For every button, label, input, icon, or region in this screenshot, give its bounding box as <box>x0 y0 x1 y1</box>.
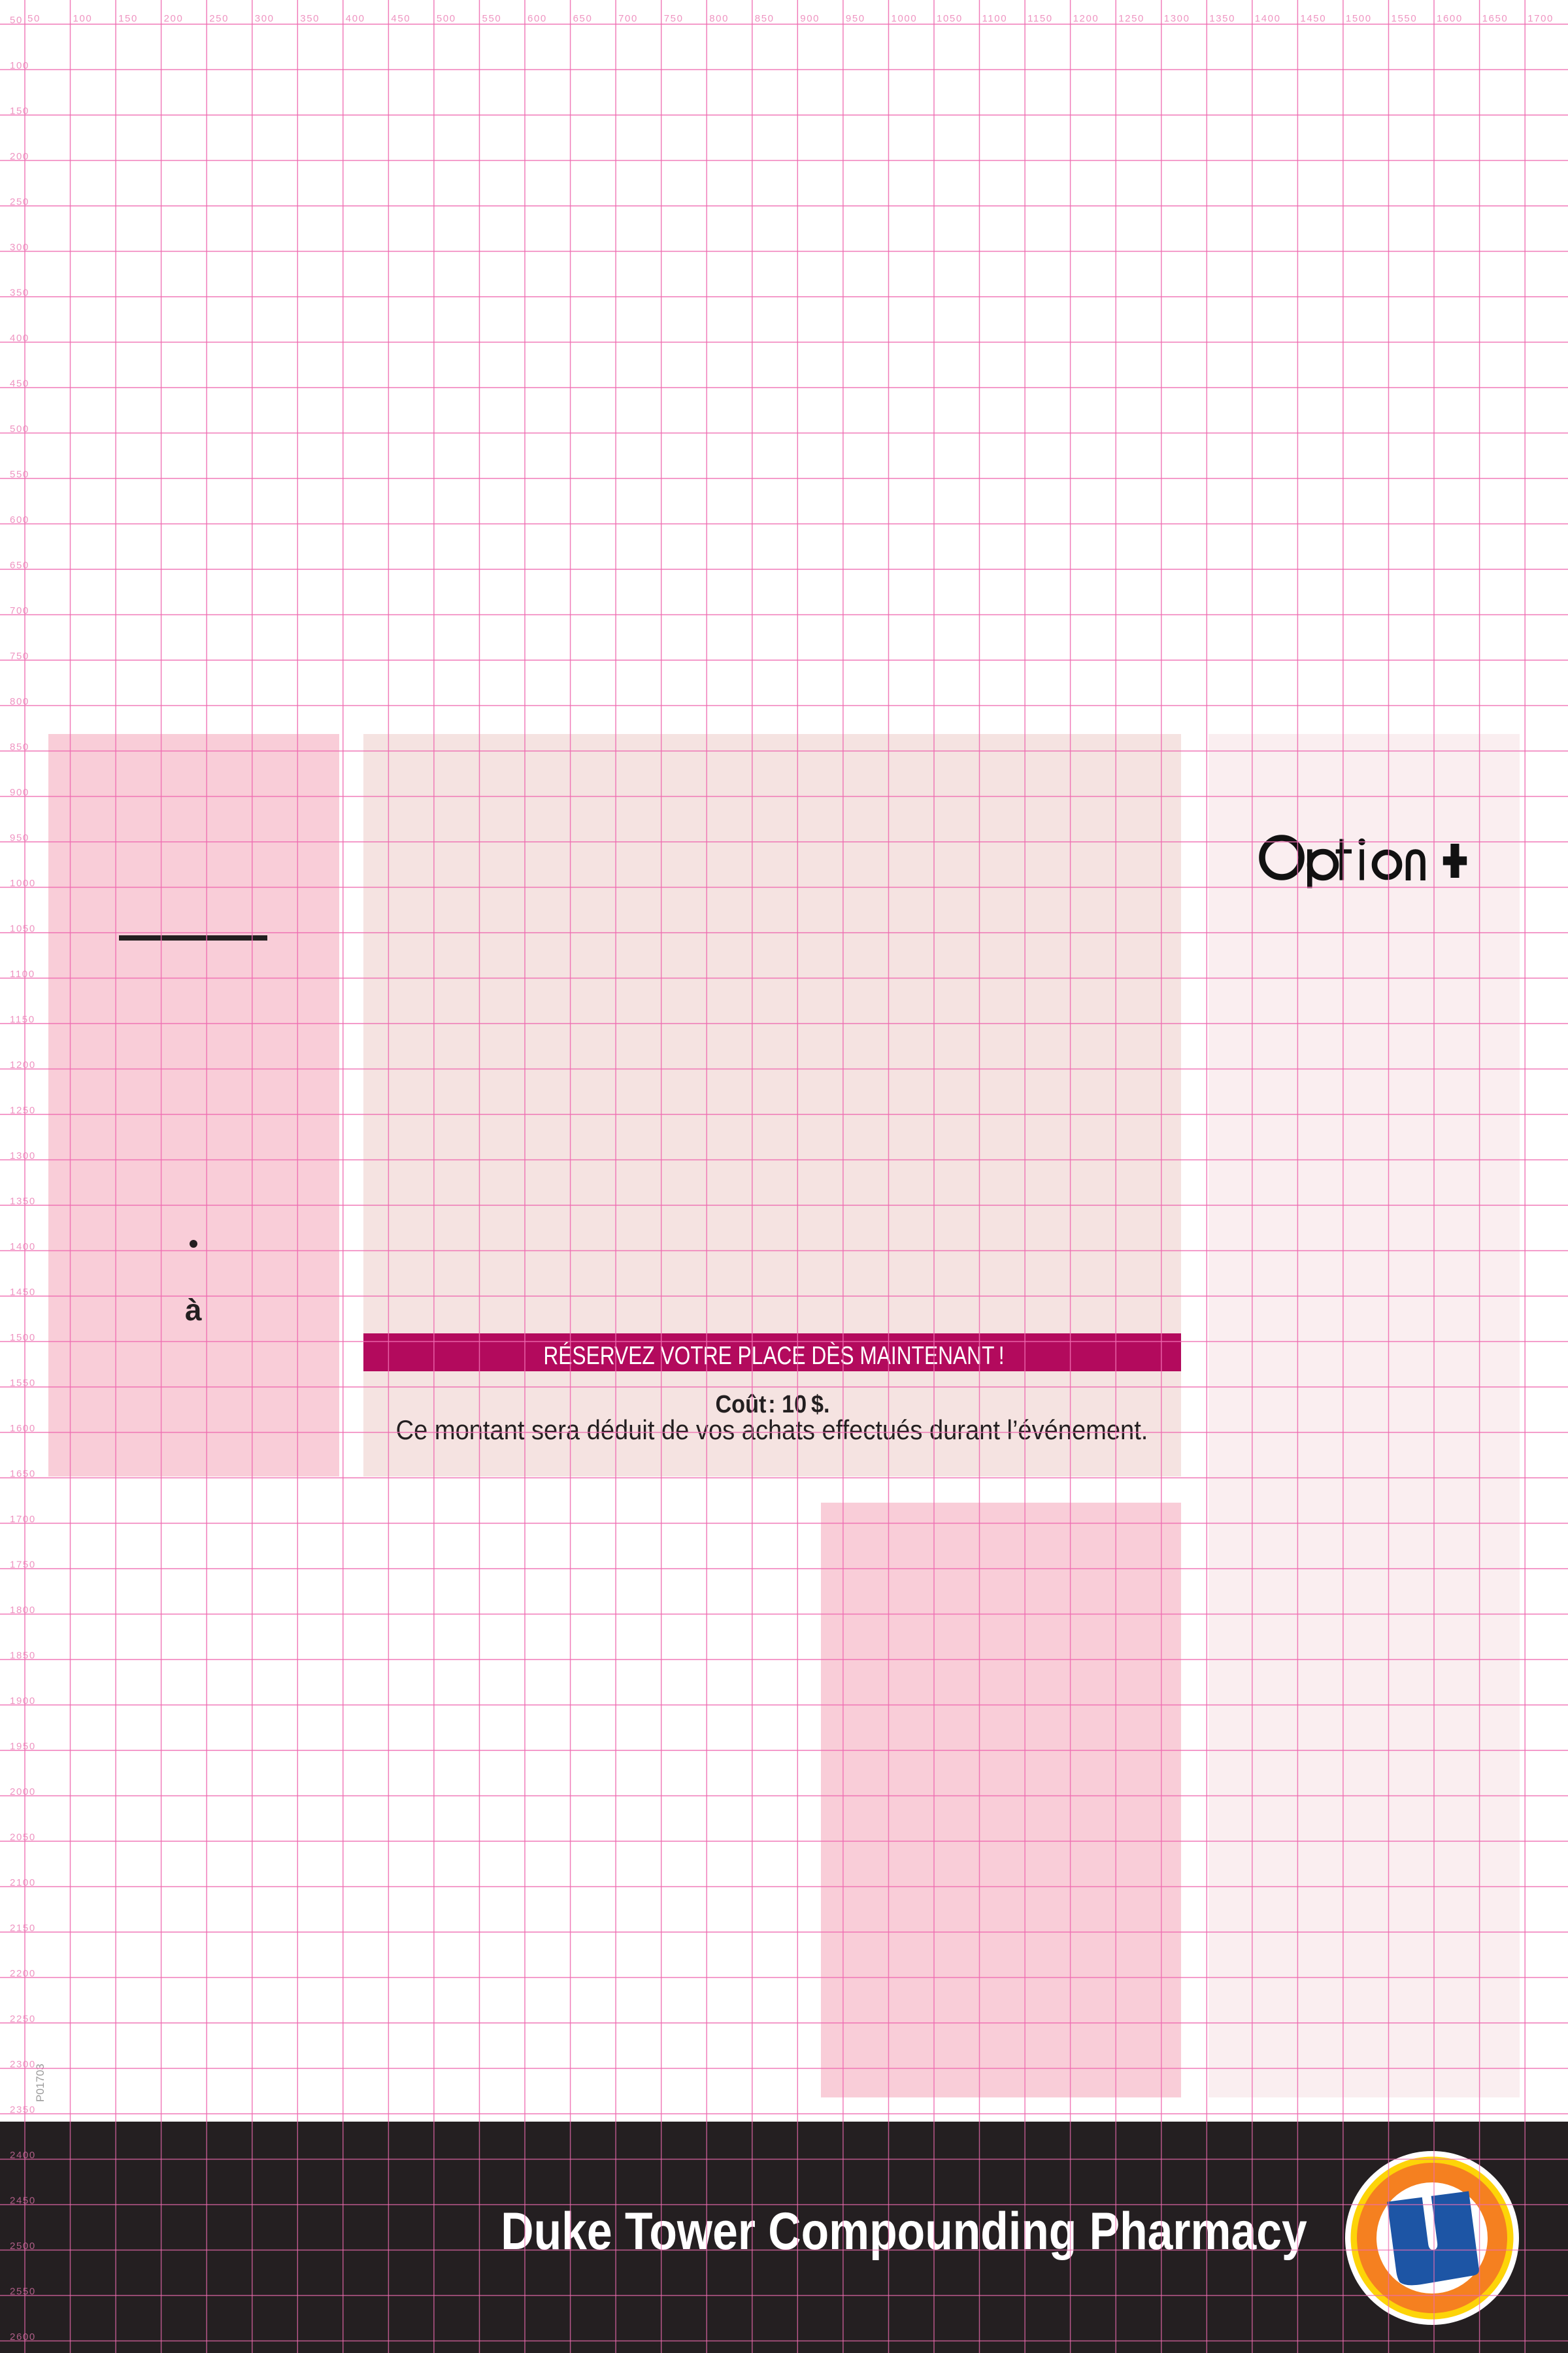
svg-text:350: 350 <box>10 288 29 299</box>
svg-text:400: 400 <box>346 13 365 24</box>
svg-text:1600: 1600 <box>1437 13 1463 24</box>
svg-text:850: 850 <box>10 742 29 753</box>
svg-text:2250: 2250 <box>10 2014 36 2025</box>
svg-text:1450: 1450 <box>10 1287 36 1298</box>
svg-text:1250: 1250 <box>1118 13 1144 24</box>
svg-text:1650: 1650 <box>1482 13 1509 24</box>
svg-text:1600: 1600 <box>10 1423 36 1434</box>
svg-text:1500: 1500 <box>10 1332 36 1343</box>
svg-text:1050: 1050 <box>937 13 963 24</box>
svg-text:900: 900 <box>10 787 29 798</box>
svg-text:600: 600 <box>527 13 547 24</box>
svg-text:400: 400 <box>346 13 365 24</box>
svg-text:1850: 1850 <box>10 1650 36 1661</box>
svg-text:650: 650 <box>10 560 29 571</box>
svg-text:1900: 1900 <box>10 1695 36 1707</box>
svg-text:2250: 2250 <box>10 2014 36 2025</box>
svg-text:750: 750 <box>10 651 29 662</box>
svg-text:1650: 1650 <box>1482 13 1509 24</box>
svg-text:800: 800 <box>10 696 29 707</box>
svg-text:1550: 1550 <box>1392 13 1418 24</box>
svg-text:2150: 2150 <box>10 1923 36 1934</box>
svg-text:350: 350 <box>10 288 29 299</box>
svg-text:1550: 1550 <box>1392 13 1418 24</box>
svg-text:350: 350 <box>300 13 320 24</box>
svg-text:1150: 1150 <box>10 1014 35 1026</box>
svg-text:300: 300 <box>255 13 275 24</box>
svg-text:400: 400 <box>10 333 29 344</box>
svg-text:50: 50 <box>27 13 41 24</box>
svg-text:1900: 1900 <box>10 1695 36 1707</box>
svg-text:550: 550 <box>10 469 29 480</box>
svg-text:450: 450 <box>391 13 410 24</box>
svg-text:2200: 2200 <box>10 1968 36 1979</box>
svg-text:950: 950 <box>10 833 29 844</box>
svg-text:1100: 1100 <box>982 13 1008 24</box>
svg-text:1550: 1550 <box>10 1378 36 1389</box>
svg-text:900: 900 <box>10 787 29 798</box>
svg-text:200: 200 <box>164 13 184 24</box>
svg-text:1300: 1300 <box>1164 13 1190 24</box>
svg-text:200: 200 <box>10 151 29 162</box>
svg-text:2300: 2300 <box>10 2059 36 2070</box>
svg-text:400: 400 <box>10 333 29 344</box>
svg-text:1400: 1400 <box>10 1241 36 1252</box>
svg-text:2150: 2150 <box>10 1923 36 1934</box>
svg-text:950: 950 <box>846 13 865 24</box>
svg-text:550: 550 <box>10 469 29 480</box>
svg-text:750: 750 <box>664 13 684 24</box>
svg-text:650: 650 <box>10 560 29 571</box>
svg-text:1250: 1250 <box>10 1105 36 1116</box>
svg-text:1700: 1700 <box>1527 13 1554 24</box>
svg-text:1600: 1600 <box>10 1423 36 1434</box>
svg-text:250: 250 <box>209 13 229 24</box>
svg-text:600: 600 <box>10 514 29 526</box>
svg-text:2350: 2350 <box>10 2105 36 2116</box>
svg-text:500: 500 <box>437 13 456 24</box>
svg-text:750: 750 <box>664 13 684 24</box>
svg-text:300: 300 <box>10 242 29 253</box>
svg-text:2050: 2050 <box>10 1832 36 1843</box>
svg-text:1400: 1400 <box>10 1241 36 1252</box>
svg-text:1250: 1250 <box>10 1105 36 1116</box>
svg-text:500: 500 <box>10 424 29 435</box>
svg-text:1350: 1350 <box>1209 13 1235 24</box>
svg-text:1300: 1300 <box>10 1150 36 1161</box>
svg-text:50: 50 <box>10 15 23 26</box>
svg-text:800: 800 <box>709 13 729 24</box>
svg-text:200: 200 <box>164 13 184 24</box>
svg-text:750: 750 <box>10 651 29 662</box>
svg-text:1050: 1050 <box>10 924 36 935</box>
svg-text:1300: 1300 <box>1164 13 1190 24</box>
svg-text:1150: 1150 <box>1027 13 1053 24</box>
svg-text:1400: 1400 <box>1255 13 1281 24</box>
svg-text:1950: 1950 <box>10 1741 36 1752</box>
svg-text:300: 300 <box>10 242 29 253</box>
svg-text:550: 550 <box>482 13 502 24</box>
svg-text:1000: 1000 <box>892 13 918 24</box>
svg-text:1600: 1600 <box>1437 13 1463 24</box>
svg-text:2050: 2050 <box>10 1832 36 1843</box>
svg-text:1400: 1400 <box>1255 13 1281 24</box>
svg-text:150: 150 <box>10 106 29 117</box>
svg-text:1450: 1450 <box>1300 13 1326 24</box>
svg-text:1100: 1100 <box>982 13 1008 24</box>
svg-text:50: 50 <box>27 13 41 24</box>
svg-text:150: 150 <box>10 106 29 117</box>
svg-text:800: 800 <box>709 13 729 24</box>
svg-text:1350: 1350 <box>10 1196 36 1207</box>
svg-text:1800: 1800 <box>10 1605 36 1616</box>
svg-text:850: 850 <box>755 13 775 24</box>
svg-text:1150: 1150 <box>1027 13 1053 24</box>
svg-text:1700: 1700 <box>10 1514 36 1525</box>
svg-text:1350: 1350 <box>1209 13 1235 24</box>
svg-text:1750: 1750 <box>10 1560 36 1571</box>
svg-text:650: 650 <box>573 13 593 24</box>
svg-text:1800: 1800 <box>10 1605 36 1616</box>
svg-text:600: 600 <box>10 514 29 526</box>
svg-text:1000: 1000 <box>892 13 918 24</box>
svg-text:1100: 1100 <box>10 969 35 980</box>
svg-text:900: 900 <box>800 13 820 24</box>
svg-text:1200: 1200 <box>1073 13 1099 24</box>
svg-text:1500: 1500 <box>1346 13 1372 24</box>
svg-text:2100: 2100 <box>10 1877 36 1888</box>
svg-text:800: 800 <box>10 696 29 707</box>
svg-text:100: 100 <box>73 13 93 24</box>
svg-text:2300: 2300 <box>10 2059 36 2070</box>
svg-text:2200: 2200 <box>10 1968 36 1979</box>
svg-text:850: 850 <box>755 13 775 24</box>
svg-text:1150: 1150 <box>10 1014 35 1026</box>
svg-text:450: 450 <box>10 378 29 390</box>
svg-text:1950: 1950 <box>10 1741 36 1752</box>
svg-text:1200: 1200 <box>10 1060 36 1071</box>
svg-text:1500: 1500 <box>10 1332 36 1343</box>
svg-text:1700: 1700 <box>10 1514 36 1525</box>
svg-text:950: 950 <box>846 13 865 24</box>
svg-text:1550: 1550 <box>10 1378 36 1389</box>
svg-text:1000: 1000 <box>10 878 36 889</box>
svg-text:2000: 2000 <box>10 1786 36 1797</box>
svg-text:1350: 1350 <box>10 1196 36 1207</box>
svg-text:850: 850 <box>10 742 29 753</box>
svg-text:50: 50 <box>10 15 23 26</box>
svg-text:250: 250 <box>209 13 229 24</box>
svg-text:100: 100 <box>10 60 29 71</box>
svg-text:1250: 1250 <box>1118 13 1144 24</box>
svg-text:2000: 2000 <box>10 1786 36 1797</box>
svg-text:1050: 1050 <box>937 13 963 24</box>
svg-text:1050: 1050 <box>10 924 36 935</box>
svg-text:1650: 1650 <box>10 1469 36 1480</box>
svg-text:950: 950 <box>10 833 29 844</box>
svg-text:700: 700 <box>10 605 29 616</box>
svg-text:1100: 1100 <box>10 969 35 980</box>
svg-text:1500: 1500 <box>1346 13 1372 24</box>
svg-text:100: 100 <box>73 13 93 24</box>
svg-text:450: 450 <box>10 378 29 390</box>
svg-text:1000: 1000 <box>10 878 36 889</box>
svg-text:250: 250 <box>10 197 29 208</box>
svg-text:1300: 1300 <box>10 1150 36 1161</box>
svg-text:1750: 1750 <box>10 1560 36 1571</box>
svg-text:1200: 1200 <box>10 1060 36 1071</box>
svg-text:700: 700 <box>10 605 29 616</box>
svg-text:1850: 1850 <box>10 1650 36 1661</box>
svg-text:350: 350 <box>300 13 320 24</box>
svg-text:1200: 1200 <box>1073 13 1099 24</box>
svg-text:900: 900 <box>800 13 820 24</box>
svg-text:450: 450 <box>391 13 410 24</box>
svg-text:250: 250 <box>10 197 29 208</box>
svg-text:500: 500 <box>10 424 29 435</box>
svg-text:1650: 1650 <box>10 1469 36 1480</box>
svg-text:100: 100 <box>10 60 29 71</box>
svg-text:200: 200 <box>10 151 29 162</box>
svg-text:600: 600 <box>527 13 547 24</box>
svg-text:1450: 1450 <box>1300 13 1326 24</box>
svg-text:700: 700 <box>618 13 638 24</box>
svg-text:2100: 2100 <box>10 1877 36 1888</box>
svg-text:650: 650 <box>573 13 593 24</box>
svg-text:300: 300 <box>255 13 275 24</box>
svg-text:500: 500 <box>437 13 456 24</box>
svg-text:550: 550 <box>482 13 502 24</box>
svg-text:2350: 2350 <box>10 2105 36 2116</box>
svg-text:700: 700 <box>618 13 638 24</box>
svg-text:150: 150 <box>118 13 138 24</box>
svg-text:150: 150 <box>118 13 138 24</box>
svg-text:1450: 1450 <box>10 1287 36 1298</box>
svg-text:1700: 1700 <box>1527 13 1554 24</box>
